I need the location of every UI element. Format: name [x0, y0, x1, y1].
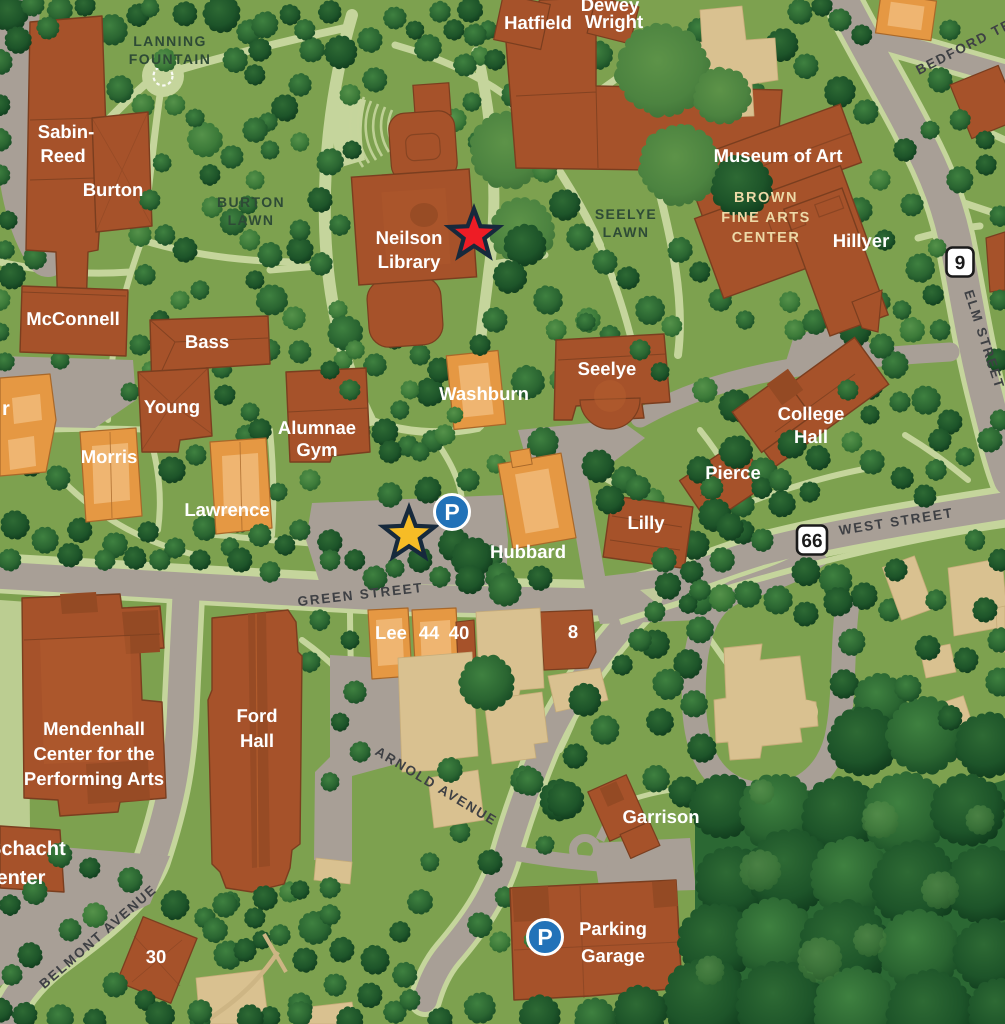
- svg-text:P: P: [444, 499, 459, 525]
- svg-text:Schacht: Schacht: [0, 838, 66, 860]
- svg-text:Dewey: Dewey: [581, 0, 640, 15]
- svg-text:66: 66: [801, 531, 822, 552]
- svg-text:Museum of Art: Museum of Art: [714, 145, 843, 166]
- svg-text:FINE ARTS: FINE ARTS: [721, 210, 811, 226]
- svg-text:Performing Arts: Performing Arts: [24, 768, 164, 789]
- svg-text:McConnell: McConnell: [26, 308, 120, 329]
- svg-text:Garrison: Garrison: [622, 806, 699, 827]
- svg-text:Hillyer: Hillyer: [833, 230, 890, 251]
- svg-text:FOUNTAIN: FOUNTAIN: [129, 51, 212, 67]
- svg-text:Young: Young: [144, 396, 200, 417]
- svg-text:Alumnae: Alumnae: [278, 417, 356, 438]
- svg-text:LANNING: LANNING: [133, 33, 207, 49]
- svg-text:40: 40: [449, 622, 470, 643]
- svg-text:Center: Center: [0, 867, 46, 889]
- svg-text:Seelye: Seelye: [578, 358, 637, 379]
- svg-text:Washburn: Washburn: [439, 383, 529, 404]
- svg-text:Lawrence: Lawrence: [184, 499, 269, 520]
- svg-text:Parking: Parking: [579, 918, 647, 939]
- svg-text:Hatfield: Hatfield: [504, 12, 572, 33]
- svg-text:8: 8: [568, 621, 578, 642]
- svg-text:Hall: Hall: [240, 730, 274, 751]
- svg-text:Center for the: Center for the: [33, 743, 154, 764]
- svg-text:Morris: Morris: [81, 446, 138, 467]
- svg-text:Garage: Garage: [581, 945, 645, 966]
- svg-text:Sabin-: Sabin-: [38, 121, 95, 142]
- svg-text:Hubbard: Hubbard: [490, 541, 566, 562]
- svg-text:Library: Library: [378, 251, 441, 272]
- svg-text:LAWN: LAWN: [228, 212, 275, 228]
- svg-text:r: r: [2, 398, 10, 420]
- svg-text:Lilly: Lilly: [627, 512, 665, 533]
- svg-text:Hall: Hall: [794, 426, 828, 447]
- svg-text:Reed: Reed: [40, 145, 85, 166]
- svg-text:44: 44: [419, 622, 440, 643]
- svg-text:Pierce: Pierce: [705, 462, 761, 483]
- svg-text:SEELYE: SEELYE: [595, 206, 657, 222]
- svg-text:Ford: Ford: [236, 705, 277, 726]
- svg-text:30: 30: [146, 946, 167, 967]
- svg-text:Burton: Burton: [83, 179, 144, 200]
- svg-text:CENTER: CENTER: [732, 230, 801, 246]
- svg-text:Gym: Gym: [296, 439, 337, 460]
- svg-text:9: 9: [955, 253, 966, 274]
- svg-text:BURTON: BURTON: [217, 194, 285, 210]
- svg-text:Neilson: Neilson: [376, 227, 443, 248]
- svg-text:Mendenhall: Mendenhall: [43, 718, 145, 739]
- svg-text:Lee: Lee: [375, 622, 407, 643]
- svg-text:LAWN: LAWN: [603, 224, 650, 240]
- svg-text:Bass: Bass: [185, 331, 229, 352]
- svg-text:P: P: [537, 924, 552, 950]
- svg-text:College: College: [778, 403, 845, 424]
- svg-text:BROWN: BROWN: [734, 190, 798, 206]
